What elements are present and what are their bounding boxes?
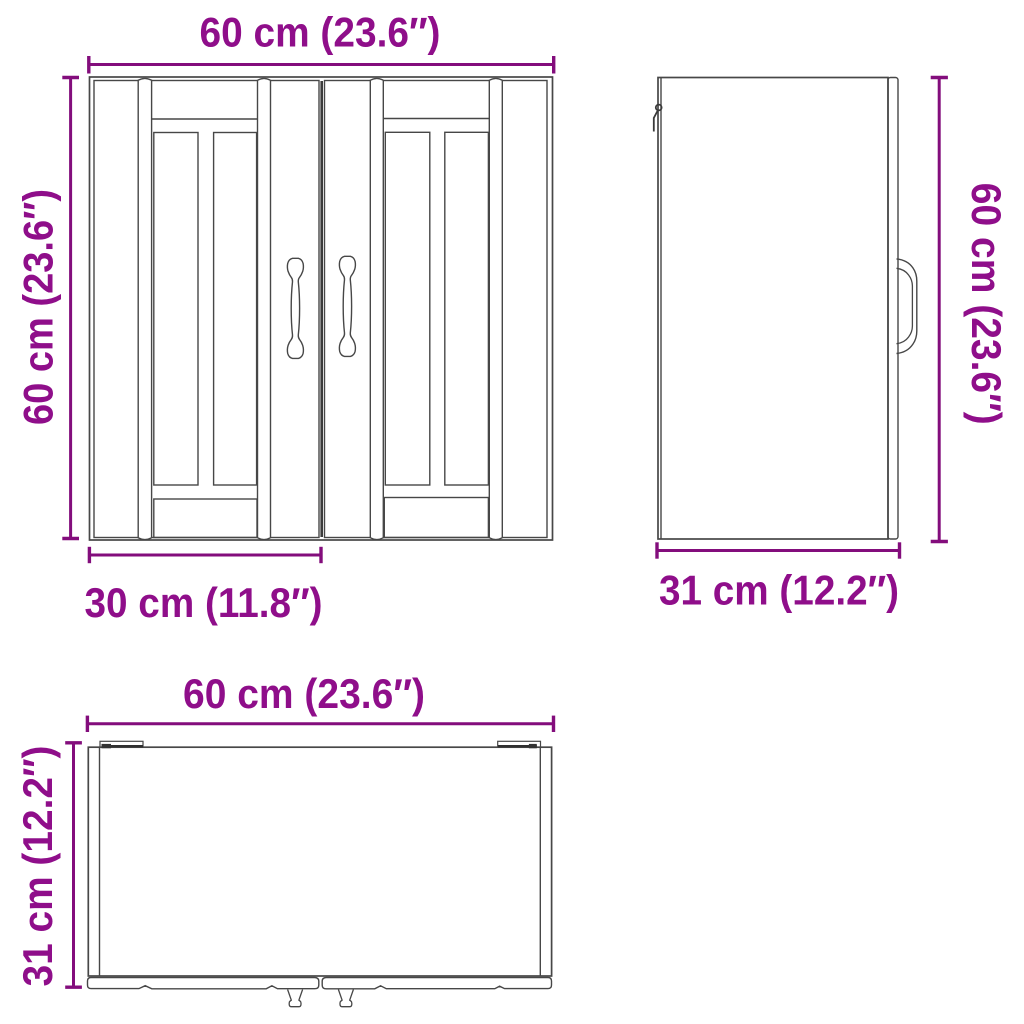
svg-text:60 cm (23.6″): 60 cm (23.6″) [15, 189, 61, 425]
svg-text:30 cm (11.8″): 30 cm (11.8″) [85, 580, 323, 626]
svg-text:60 cm (23.6″): 60 cm (23.6″) [200, 9, 441, 55]
svg-text:60 cm (23.6″): 60 cm (23.6″) [963, 183, 1009, 425]
svg-text:31 cm (12.2″): 31 cm (12.2″) [15, 746, 61, 987]
svg-text:60 cm (23.6″): 60 cm (23.6″) [183, 671, 425, 717]
svg-text:31 cm (12.2″): 31 cm (12.2″) [659, 567, 899, 613]
